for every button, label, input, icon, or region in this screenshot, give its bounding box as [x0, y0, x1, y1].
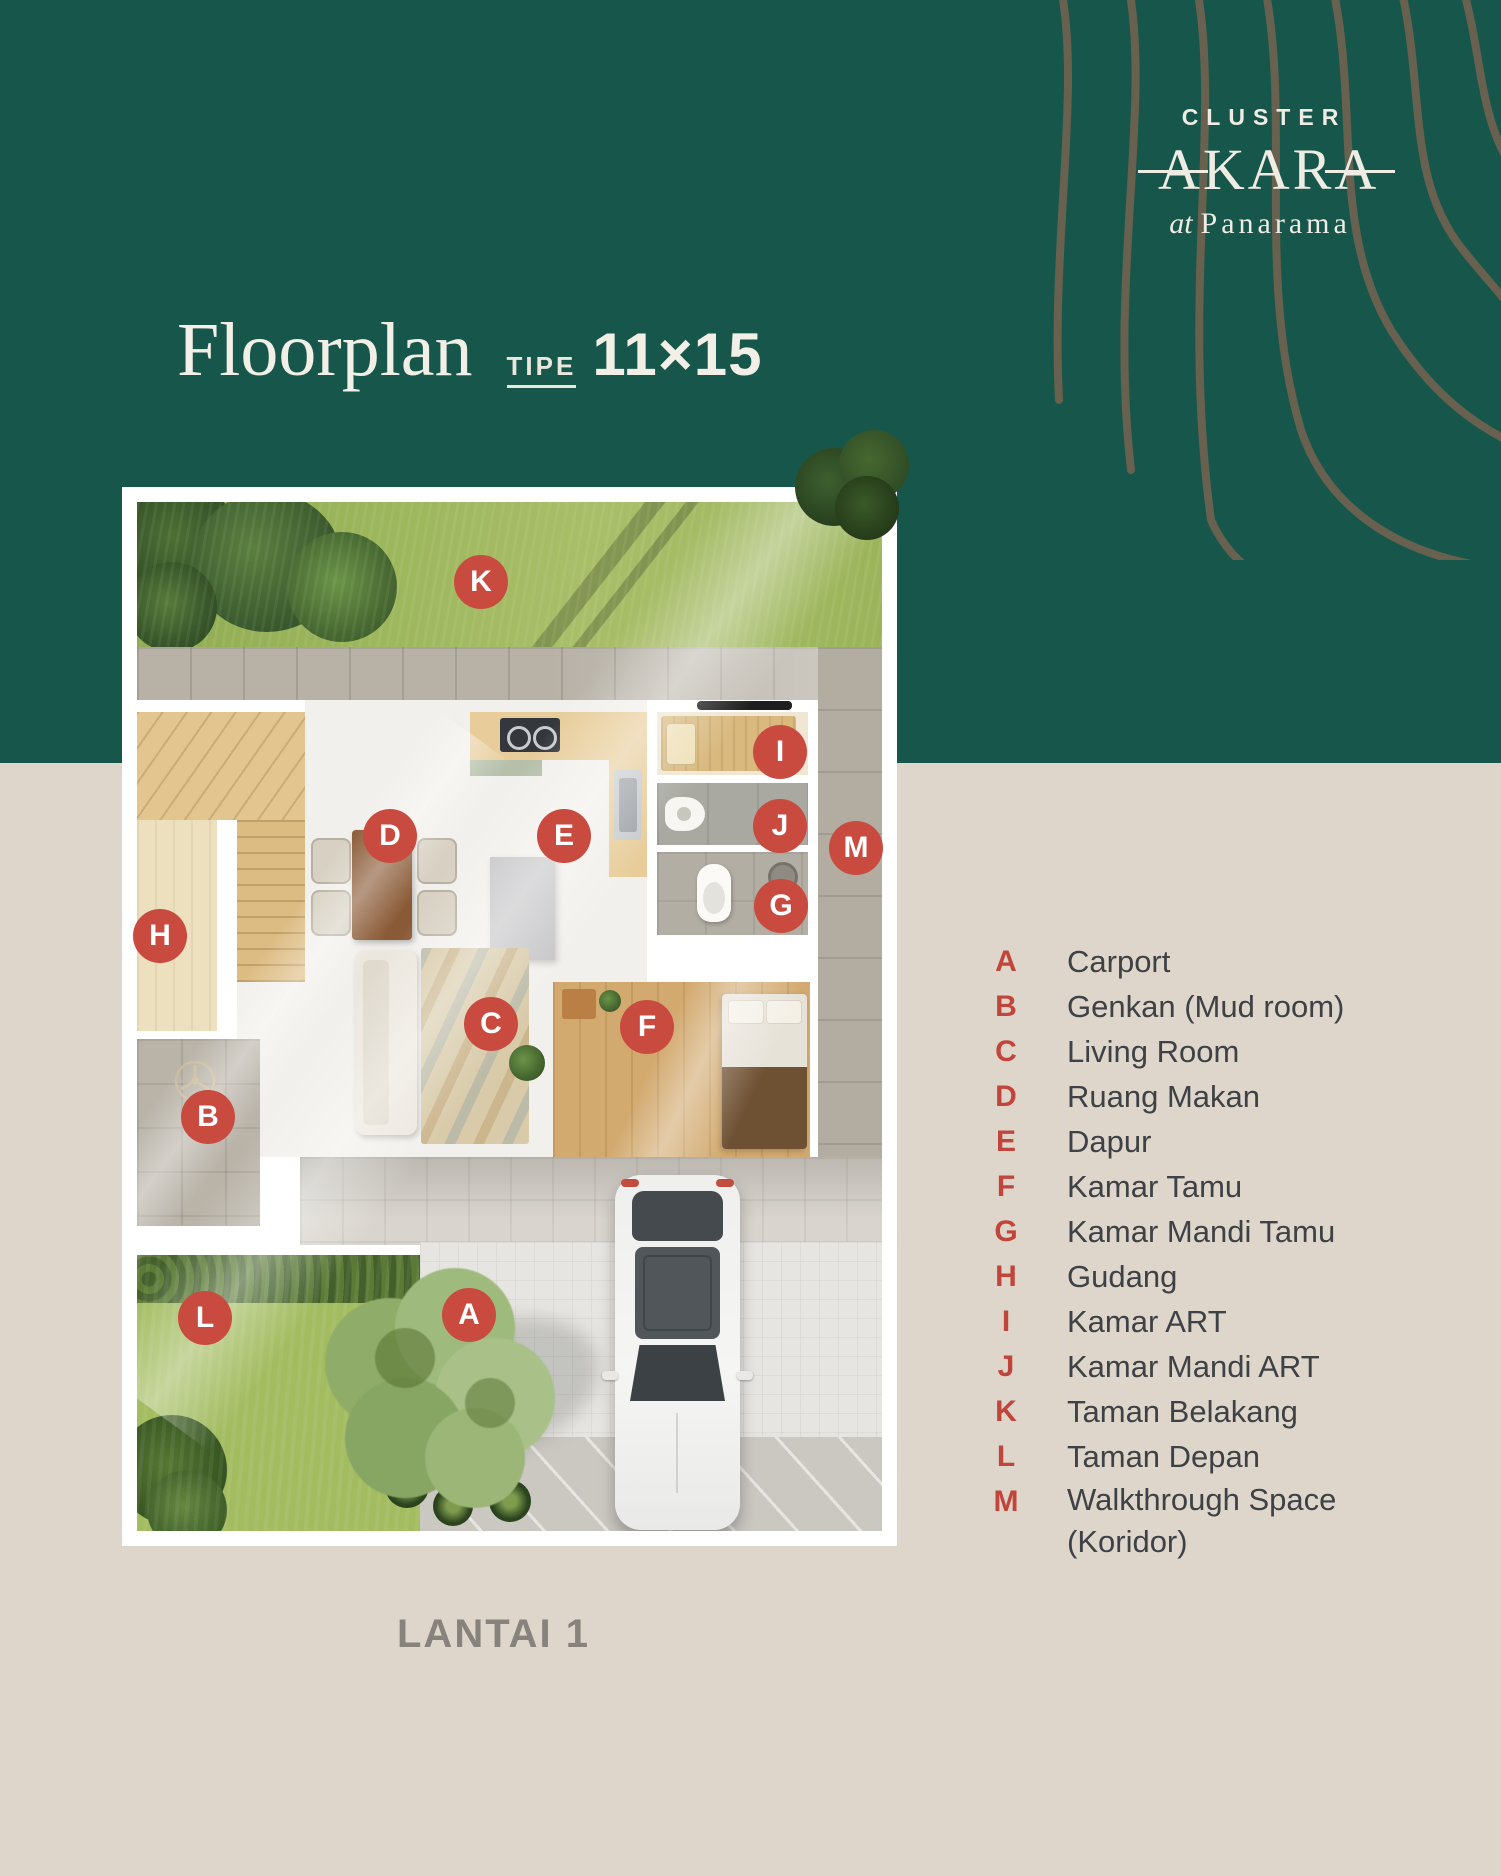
dining-chair [311, 890, 351, 936]
corner-tree [795, 430, 910, 542]
plan-marker-i: I [753, 725, 807, 779]
plan-marker-j: J [753, 799, 807, 853]
plan-marker-m: M [829, 821, 883, 875]
legend-label: Dapur [1067, 1121, 1427, 1163]
dining-chair [417, 890, 457, 936]
stairs-winder [137, 712, 305, 820]
legend-label: Carport [1067, 941, 1427, 983]
brand-tagline: atPanarama [1158, 207, 1362, 241]
potted-plant [599, 990, 621, 1012]
legend-label: Kamar Tamu [1067, 1166, 1427, 1208]
plan-marker-g: G [754, 879, 808, 933]
dining-chair [417, 838, 457, 884]
legend-label: Kamar Mandi Tamu [1067, 1211, 1427, 1253]
legend-letter: E [975, 1119, 1037, 1164]
blanket [722, 1067, 807, 1149]
toilet-icon [697, 864, 731, 922]
legend-label: Kamar Mandi ART [1067, 1346, 1427, 1388]
car-rear-window [632, 1191, 723, 1241]
plan-marker-f: F [620, 1000, 674, 1054]
contour-lines-decoration [1001, 0, 1501, 560]
brand-logo: CLUSTER AKARA atPanarama [1158, 104, 1362, 241]
brand-tagline-prefix: at [1169, 207, 1192, 240]
room-kamar-tamu [553, 982, 810, 1157]
flyer-page: CLUSTER AKARA atPanarama Floorplan TIPE … [0, 0, 1501, 1876]
legend-row: KTaman Belakang [975, 1389, 1427, 1434]
car-mirror [737, 1371, 753, 1380]
legend-letter: M [975, 1479, 1037, 1524]
brand-tagline-name: Panarama [1201, 207, 1351, 240]
car-roof [635, 1247, 720, 1339]
fern-plant [192, 502, 342, 632]
guest-bed [722, 994, 807, 1149]
kitchen-countertop [470, 760, 542, 776]
kitchen-sink [614, 770, 642, 840]
floor-label: LANTAI 1 [397, 1612, 590, 1657]
legend-row: ACarport [975, 939, 1427, 984]
legend-letter: H [975, 1254, 1037, 1299]
car-mirror [602, 1371, 618, 1380]
sofa [355, 950, 417, 1135]
brand-name: AKARA [1158, 141, 1379, 199]
kitchen-island [490, 857, 555, 960]
legend-row: JKamar Mandi ART [975, 1344, 1427, 1389]
stairs-run [237, 820, 305, 982]
legend-row: MWalkthrough Space (Koridor) [975, 1479, 1427, 1563]
legend-row: FKamar Tamu [975, 1164, 1427, 1209]
legend-label: Taman Depan [1067, 1436, 1427, 1478]
wall-bench [697, 701, 792, 710]
potted-plant [509, 1045, 545, 1081]
squat-toilet-icon [665, 797, 705, 831]
legend-label: Gudang [1067, 1256, 1427, 1298]
legend-label: Ruang Makan [1067, 1076, 1427, 1118]
plan-marker-d: D [363, 809, 417, 863]
legend-row: HGudang [975, 1254, 1427, 1299]
legend-row: GKamar Mandi Tamu [975, 1209, 1427, 1254]
car-taillight [716, 1179, 734, 1187]
side-table [562, 989, 596, 1019]
legend-row: DRuang Makan [975, 1074, 1427, 1119]
garden-walkway-tiles [137, 647, 882, 700]
legend-letter: C [975, 1029, 1037, 1074]
terrace-tiles [300, 1157, 882, 1245]
plan-marker-c: C [464, 997, 518, 1051]
room-legend: ACarport BGenkan (Mud room) CLiving Room… [975, 939, 1427, 1563]
legend-row: LTaman Depan [975, 1434, 1427, 1479]
fern-plant [287, 532, 397, 642]
fern-plant [137, 502, 239, 602]
title-floorplan: Floorplan [177, 312, 473, 388]
plan-marker-a: A [442, 1288, 496, 1342]
back-garden-grass [137, 502, 882, 647]
legend-letter: B [975, 984, 1037, 1029]
plan-marker-b: B [181, 1090, 235, 1144]
legend-letter: A [975, 939, 1037, 984]
plan-marker-k: K [454, 555, 508, 609]
legend-label: Living Room [1067, 1031, 1427, 1073]
legend-label: Kamar ART [1067, 1301, 1427, 1343]
legend-label: Walkthrough Space (Koridor) [1067, 1479, 1427, 1563]
fern-plant [137, 562, 217, 652]
title-type-label: TIPE [507, 351, 577, 388]
legend-row: EDapur [975, 1119, 1427, 1164]
brand-cluster-label: CLUSTER [1158, 104, 1362, 131]
front-garden-tree [305, 1268, 567, 1514]
bush [147, 1470, 227, 1531]
legend-row: BGenkan (Mud room) [975, 984, 1427, 1029]
legend-letter: J [975, 1344, 1037, 1389]
dining-chair [311, 838, 351, 884]
bush [137, 1415, 227, 1525]
pillow [728, 1000, 764, 1024]
legend-row: IKamar ART [975, 1299, 1427, 1344]
legend-letter: G [975, 1209, 1037, 1254]
car-windshield [630, 1345, 725, 1401]
legend-row: CLiving Room [975, 1029, 1427, 1074]
plan-marker-e: E [537, 809, 591, 863]
legend-letter: F [975, 1164, 1037, 1209]
legend-letter: D [975, 1074, 1037, 1119]
stove-icon [500, 718, 560, 752]
legend-label: Genkan (Mud room) [1067, 986, 1427, 1028]
legend-letter: K [975, 1389, 1037, 1434]
plan-marker-l: L [178, 1291, 232, 1345]
plan-marker-h: H [133, 909, 187, 963]
title-dimensions: 11×15 [592, 320, 762, 389]
pillow [766, 1000, 802, 1024]
legend-letter: I [975, 1299, 1037, 1344]
legend-letter: L [975, 1434, 1037, 1479]
car [615, 1175, 740, 1530]
page-title: Floorplan TIPE 11×15 [177, 312, 763, 389]
car-hood-line [676, 1413, 678, 1493]
legend-label: Taman Belakang [1067, 1391, 1427, 1433]
car-taillight [621, 1179, 639, 1187]
walkthrough-corridor [818, 647, 882, 1242]
